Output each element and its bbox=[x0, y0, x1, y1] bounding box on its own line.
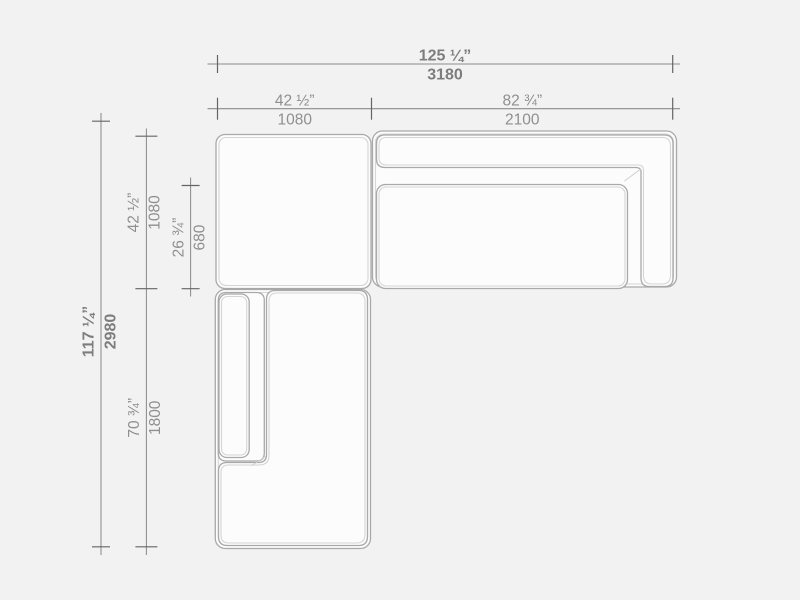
svg-text:2100: 2100 bbox=[505, 112, 540, 129]
svg-text:1080: 1080 bbox=[277, 112, 312, 129]
svg-text:42 ½”: 42 ½” bbox=[126, 193, 143, 233]
svg-text:125 ¼”: 125 ¼” bbox=[419, 48, 471, 65]
svg-text:82 ¾”: 82 ¾” bbox=[502, 93, 542, 110]
svg-text:1080: 1080 bbox=[147, 195, 164, 230]
svg-text:42 ½”: 42 ½” bbox=[275, 93, 315, 110]
svg-text:3180: 3180 bbox=[427, 67, 463, 84]
svg-text:1800: 1800 bbox=[147, 400, 164, 435]
svg-text:680: 680 bbox=[191, 224, 208, 250]
svg-text:26 ¾”: 26 ¾” bbox=[171, 218, 188, 258]
svg-text:117 ¼”: 117 ¼” bbox=[81, 306, 98, 358]
svg-text:2980: 2980 bbox=[103, 314, 120, 350]
svg-text:70 ¾”: 70 ¾” bbox=[126, 398, 143, 438]
